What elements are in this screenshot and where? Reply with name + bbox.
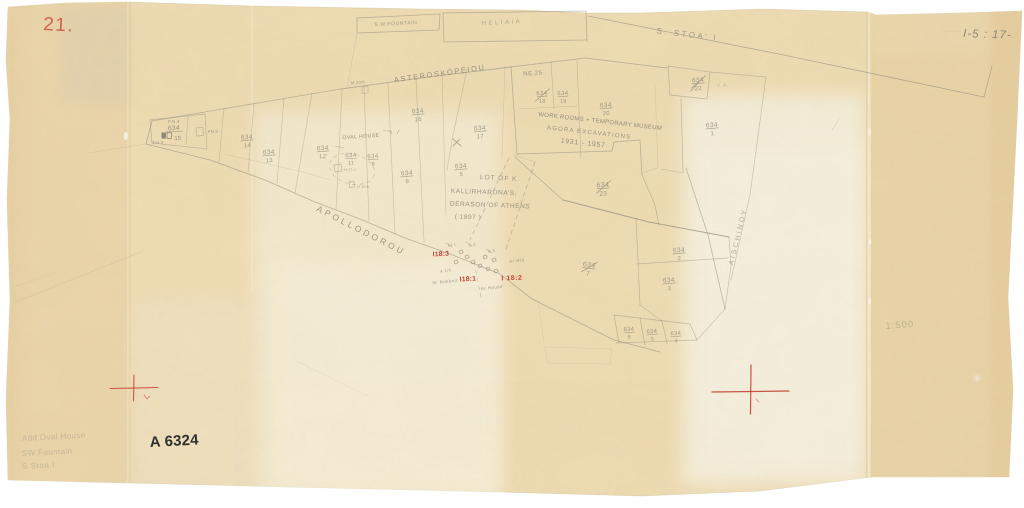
svg-text:I-5 : 17-: I-5 : 17- <box>963 28 1012 42</box>
svg-text:11: 11 <box>348 161 355 167</box>
svg-text:23: 23 <box>599 190 607 197</box>
svg-text:V.A.: V.A. <box>716 83 729 90</box>
svg-text:F.N.4: F.N.4 <box>168 119 180 125</box>
svg-text:13: 13 <box>266 158 274 164</box>
svg-text:6: 6 <box>628 334 632 340</box>
svg-text:22: 22 <box>695 86 703 92</box>
svg-text:12′: 12′ <box>319 154 328 160</box>
svg-text:I 18:2: I 18:2 <box>501 275 522 283</box>
svg-text:17: 17 <box>477 134 485 140</box>
svg-text:19: 19 <box>560 99 567 105</box>
svg-text:14: 14 <box>244 143 252 149</box>
svg-text:20: 20 <box>603 111 611 117</box>
svg-text:3: 3 <box>667 286 671 292</box>
svg-text:I18:1: I18:1 <box>459 276 476 284</box>
svg-text:H 17:2: H 17:2 <box>344 168 356 172</box>
svg-text:18: 18 <box>539 99 546 105</box>
svg-text:2: 2 <box>677 256 681 262</box>
svg-text:1:500: 1:500 <box>885 319 914 332</box>
svg-text:21.: 21. <box>43 14 75 37</box>
svg-text:1: 1 <box>710 131 714 137</box>
svg-text:A 6324: A 6324 <box>149 431 199 451</box>
svg-text:S Stoa I: S Stoa I <box>22 460 56 471</box>
svg-text:15: 15 <box>174 136 181 142</box>
svg-text:16: 16 <box>415 117 423 123</box>
svg-text:H 16:5: H 16:5 <box>357 185 369 189</box>
svg-text:4: 4 <box>675 338 679 344</box>
svg-text:8: 8 <box>371 162 375 168</box>
svg-text:7: 7 <box>396 130 400 136</box>
svg-text:5: 5 <box>459 172 463 178</box>
svg-text:9: 9 <box>405 179 409 185</box>
svg-text:5: 5 <box>651 336 655 342</box>
svg-text:F.N.3: F.N.3 <box>152 140 163 146</box>
svg-text:( 1897 ): ( 1897 ) <box>455 214 482 222</box>
svg-text:I18:3: I18:3 <box>432 251 449 259</box>
svg-text:FN.5: FN.5 <box>208 129 219 135</box>
